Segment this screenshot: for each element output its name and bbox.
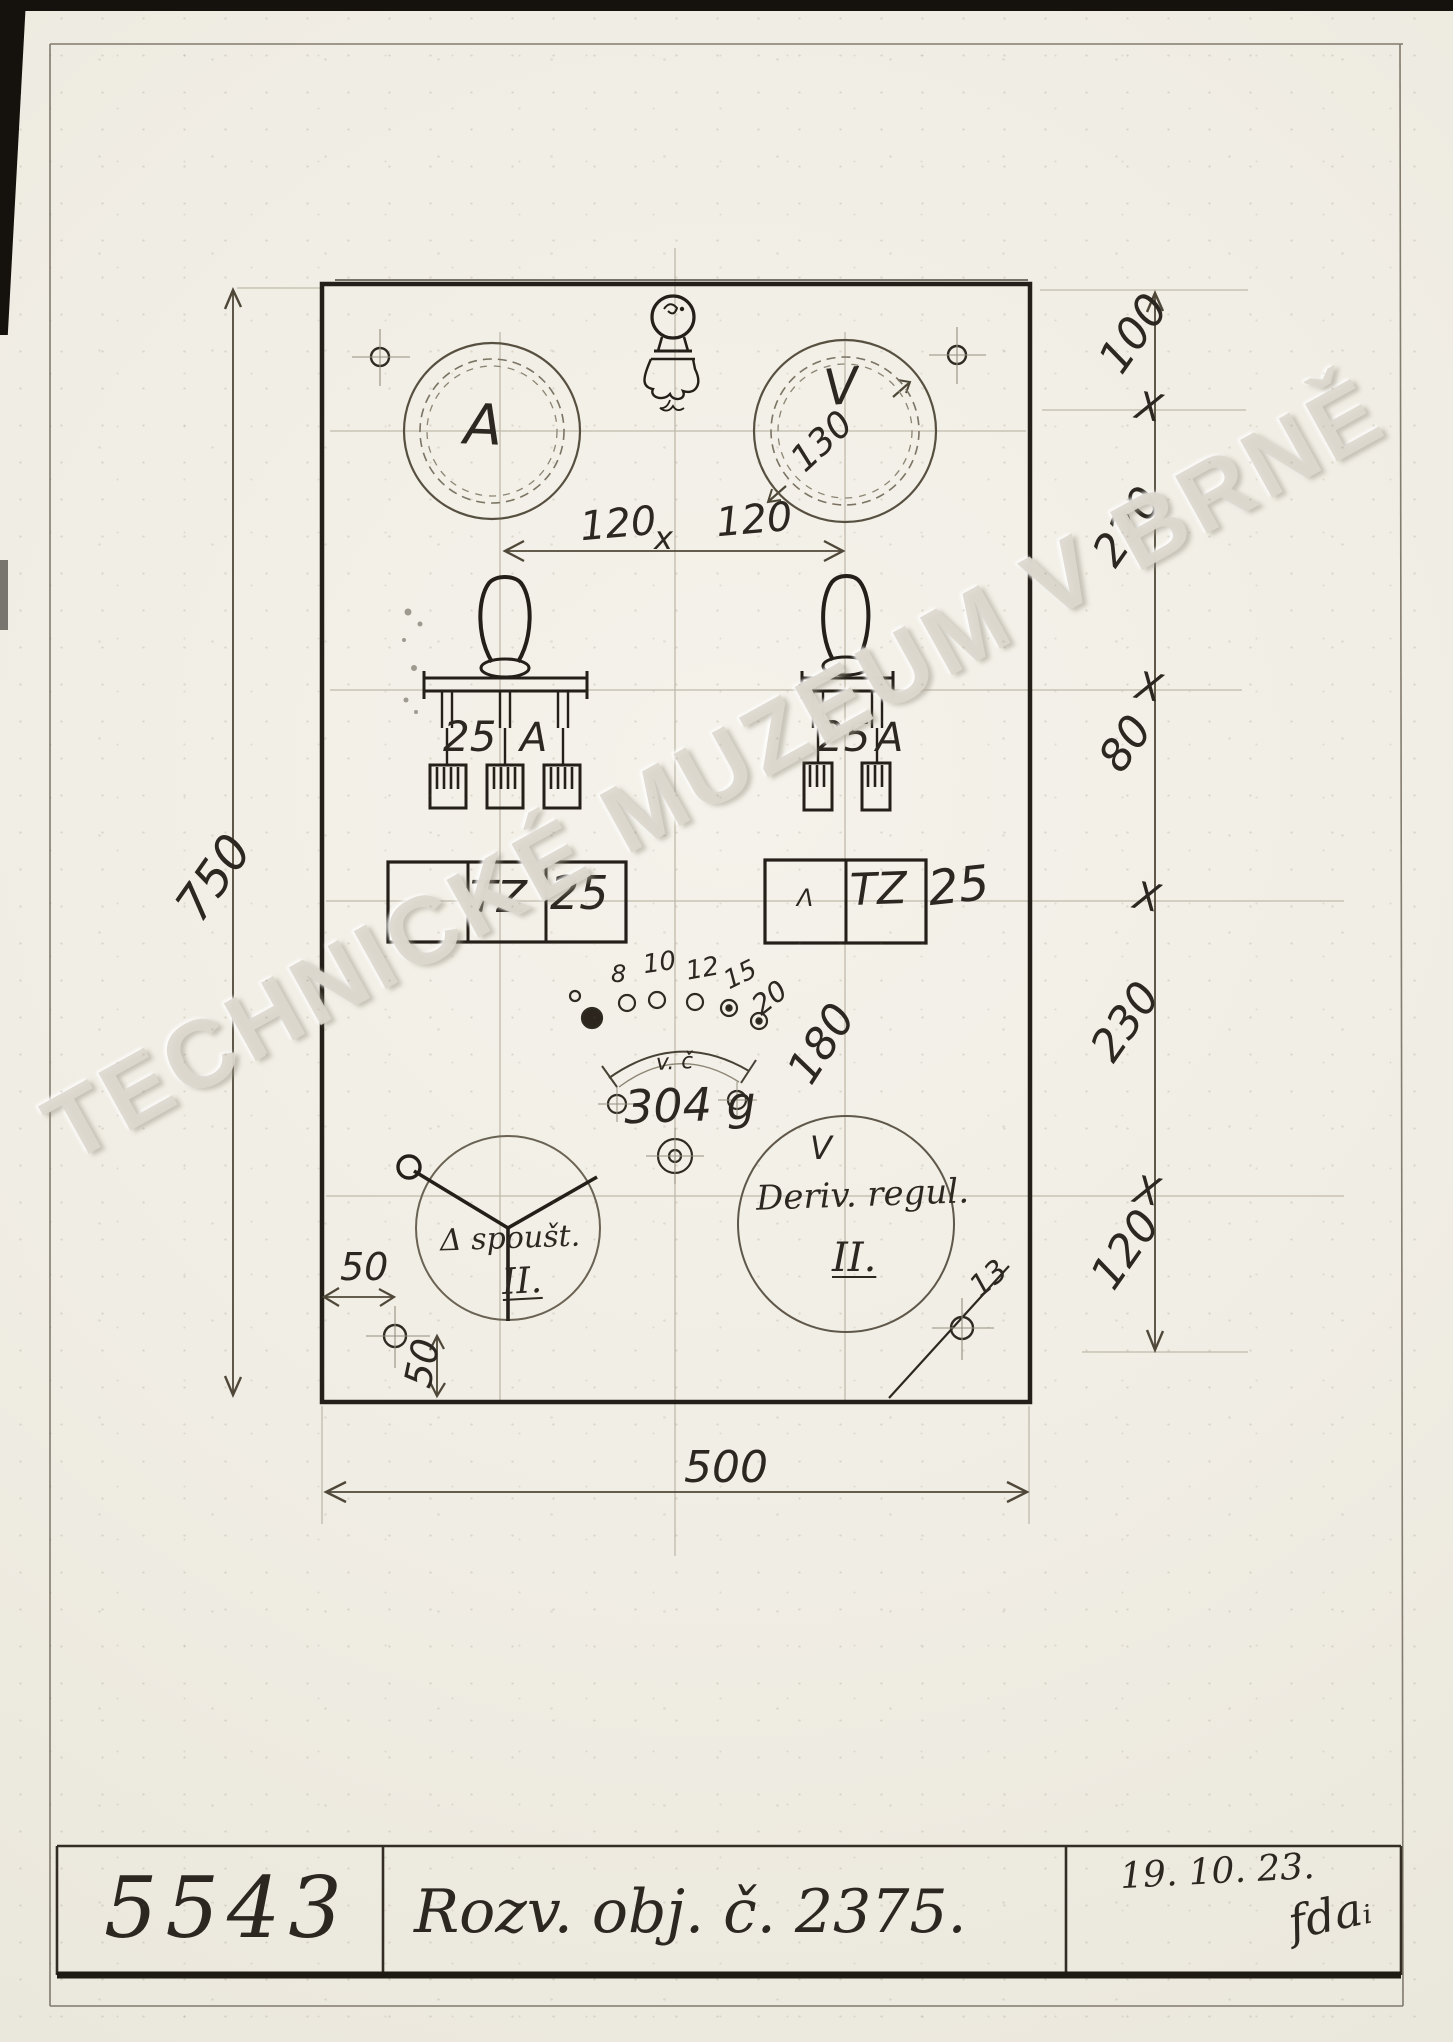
voltmeter-diameter-dim: 130 xyxy=(785,405,860,478)
dim-chain-sep-1: X xyxy=(1133,386,1165,428)
title-block-signature: fdaᵢ xyxy=(1284,1884,1375,1946)
switch-left-rating: 25 xyxy=(443,716,496,758)
dial-tick-8: 8 xyxy=(611,962,626,986)
scan-edge-top xyxy=(0,0,1453,11)
title-block-number: 5543 xyxy=(104,1866,350,1950)
dim-hole-offset-v: 50 xyxy=(399,1335,446,1390)
dial-part-label: 304 g xyxy=(623,1080,756,1131)
dim-chain-230: 230 xyxy=(1084,975,1168,1069)
title-block-date: 19. 10. 23. xyxy=(1119,1849,1315,1895)
dim-hole-offset-h: 50 xyxy=(340,1248,388,1286)
dim-chain-sep-3: X xyxy=(1131,876,1163,918)
starter-line2: II. xyxy=(501,1263,543,1301)
hole-diameter-dim: 13 xyxy=(965,1255,1014,1303)
dim-height-total: 750 xyxy=(168,827,260,930)
fuse-right-mark: Λ xyxy=(797,886,813,910)
dim-chain-100: 100 xyxy=(1092,287,1176,381)
dial-tick-10: 10 xyxy=(641,948,677,978)
fuse-right-type: TZ xyxy=(849,867,908,913)
title-block-title: Rozv. obj. č. 2375. xyxy=(414,1882,967,1942)
dim-meter-spacing-sep: x xyxy=(654,522,673,554)
dial-arc-label: v. č xyxy=(655,1051,693,1075)
regulator-line1: Deriv. regul. xyxy=(755,1174,969,1215)
dial-sweep-angle: 180 xyxy=(781,997,864,1091)
starter-line1: Δ spoušt. xyxy=(440,1222,581,1257)
voltmeter-label: V xyxy=(822,361,860,414)
dial-tick-12: 12 xyxy=(684,953,721,984)
dim-meter-spacing-right: 120 xyxy=(714,497,794,544)
scan-edge-left-mark xyxy=(0,560,8,630)
fuse-right-rating: 25 xyxy=(926,859,992,913)
drawing-sheet: A V 130 120 x 120 25 A 25 A TZ 25 Λ TZ 2… xyxy=(0,0,1453,2042)
regulator-line2: II. xyxy=(832,1238,876,1278)
dim-width-total: 500 xyxy=(684,1446,768,1490)
dim-meter-spacing-left: 120 xyxy=(578,501,658,548)
dim-chain-80: 80 xyxy=(1092,708,1160,779)
dim-chain-sep-2: X xyxy=(1133,666,1165,708)
switch-left-unit: A xyxy=(520,718,547,758)
dim-chain-120: 120 xyxy=(1084,1203,1168,1297)
regulator-mark: V xyxy=(810,1132,832,1164)
ammeter-label: A xyxy=(463,397,503,454)
